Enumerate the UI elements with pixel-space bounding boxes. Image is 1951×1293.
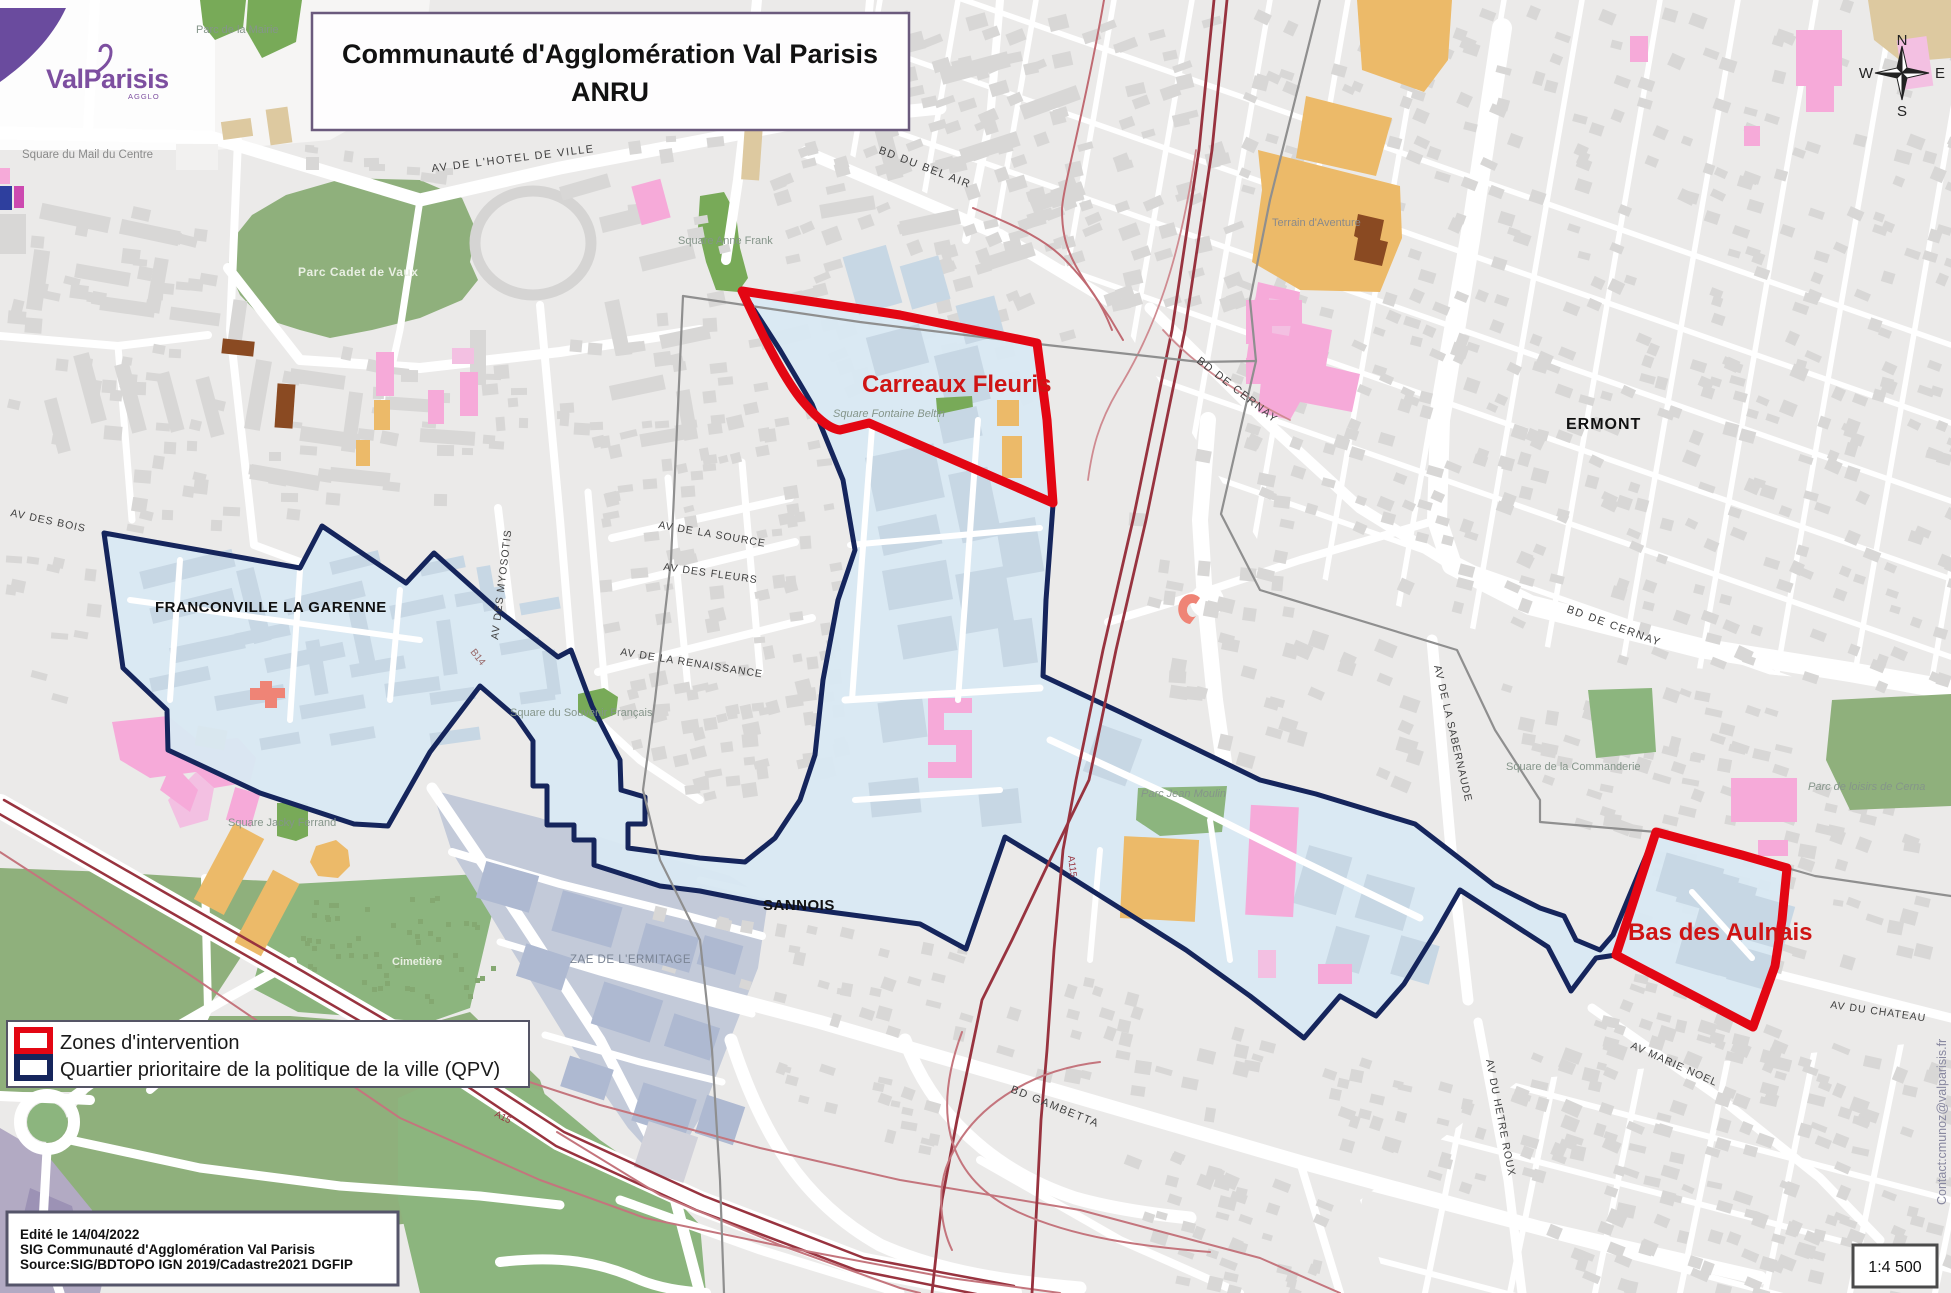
svg-text:Parc de la Mairie: Parc de la Mairie xyxy=(196,24,279,36)
svg-text:Contact:cmunoz@valparisis.fr: Contact:cmunoz@valparisis.fr xyxy=(1935,1039,1949,1205)
svg-text:W: W xyxy=(1859,65,1874,82)
svg-text:Edité le 14/04/2022: Edité le 14/04/2022 xyxy=(20,1227,139,1242)
svg-text:E: E xyxy=(1935,65,1945,82)
svg-text:Square de la Commanderie: Square de la Commanderie xyxy=(1506,761,1641,773)
svg-text:ANRU: ANRU xyxy=(571,77,649,107)
svg-text:N: N xyxy=(1897,32,1908,49)
svg-text:SANNOIS: SANNOIS xyxy=(763,897,835,914)
svg-text:Terrain d'Aventure: Terrain d'Aventure xyxy=(1272,217,1361,229)
svg-text:Quartier prioritaire de la pol: Quartier prioritaire de la politique de … xyxy=(60,1059,500,1081)
svg-text:Carreaux Fleuris: Carreaux Fleuris xyxy=(862,371,1051,398)
svg-text:Square du Souvenir Français: Square du Souvenir Français xyxy=(510,707,653,719)
svg-text:Cimetière: Cimetière xyxy=(392,956,442,968)
svg-text:S: S xyxy=(1897,103,1907,120)
svg-text:ERMONT: ERMONT xyxy=(1566,416,1641,433)
svg-text:Source:SIG/BDTOPO IGN 2019/Cad: Source:SIG/BDTOPO IGN 2019/Cadastre2021 … xyxy=(20,1257,353,1272)
svg-text:Parc Cadet de Vaux: Parc Cadet de Vaux xyxy=(298,265,418,279)
svg-text:FRANCONVILLE LA GARENNE: FRANCONVILLE LA GARENNE xyxy=(155,599,387,616)
svg-text:Square Jacky Ferrand: Square Jacky Ferrand xyxy=(228,817,336,829)
svg-text:Parc de loisirs de Cerna: Parc de loisirs de Cerna xyxy=(1808,781,1925,793)
svg-text:ValParisis: ValParisis xyxy=(46,64,169,94)
svg-text:AGGLO: AGGLO xyxy=(128,92,160,101)
svg-text:Square Fontaine Beltin: Square Fontaine Beltin xyxy=(833,408,945,420)
svg-text:Square du Mail du Centre: Square du Mail du Centre xyxy=(22,149,153,161)
svg-text:1:4 500: 1:4 500 xyxy=(1868,1259,1921,1276)
svg-text:Communauté d'Agglomération Val: Communauté d'Agglomération Val Parisis xyxy=(342,39,878,69)
svg-text:Zones d'intervention: Zones d'intervention xyxy=(60,1032,239,1054)
svg-text:Square Anne Frank: Square Anne Frank xyxy=(678,235,773,247)
svg-text:Bas des Aulnais: Bas des Aulnais xyxy=(1628,919,1813,946)
svg-text:Parc Jean Moulin: Parc Jean Moulin xyxy=(1141,788,1226,800)
svg-text:ZAE DE L'ERMITAGE: ZAE DE L'ERMITAGE xyxy=(570,954,691,966)
svg-text:SIG Communauté d'Agglomération: SIG Communauté d'Agglomération Val Paris… xyxy=(20,1242,315,1257)
